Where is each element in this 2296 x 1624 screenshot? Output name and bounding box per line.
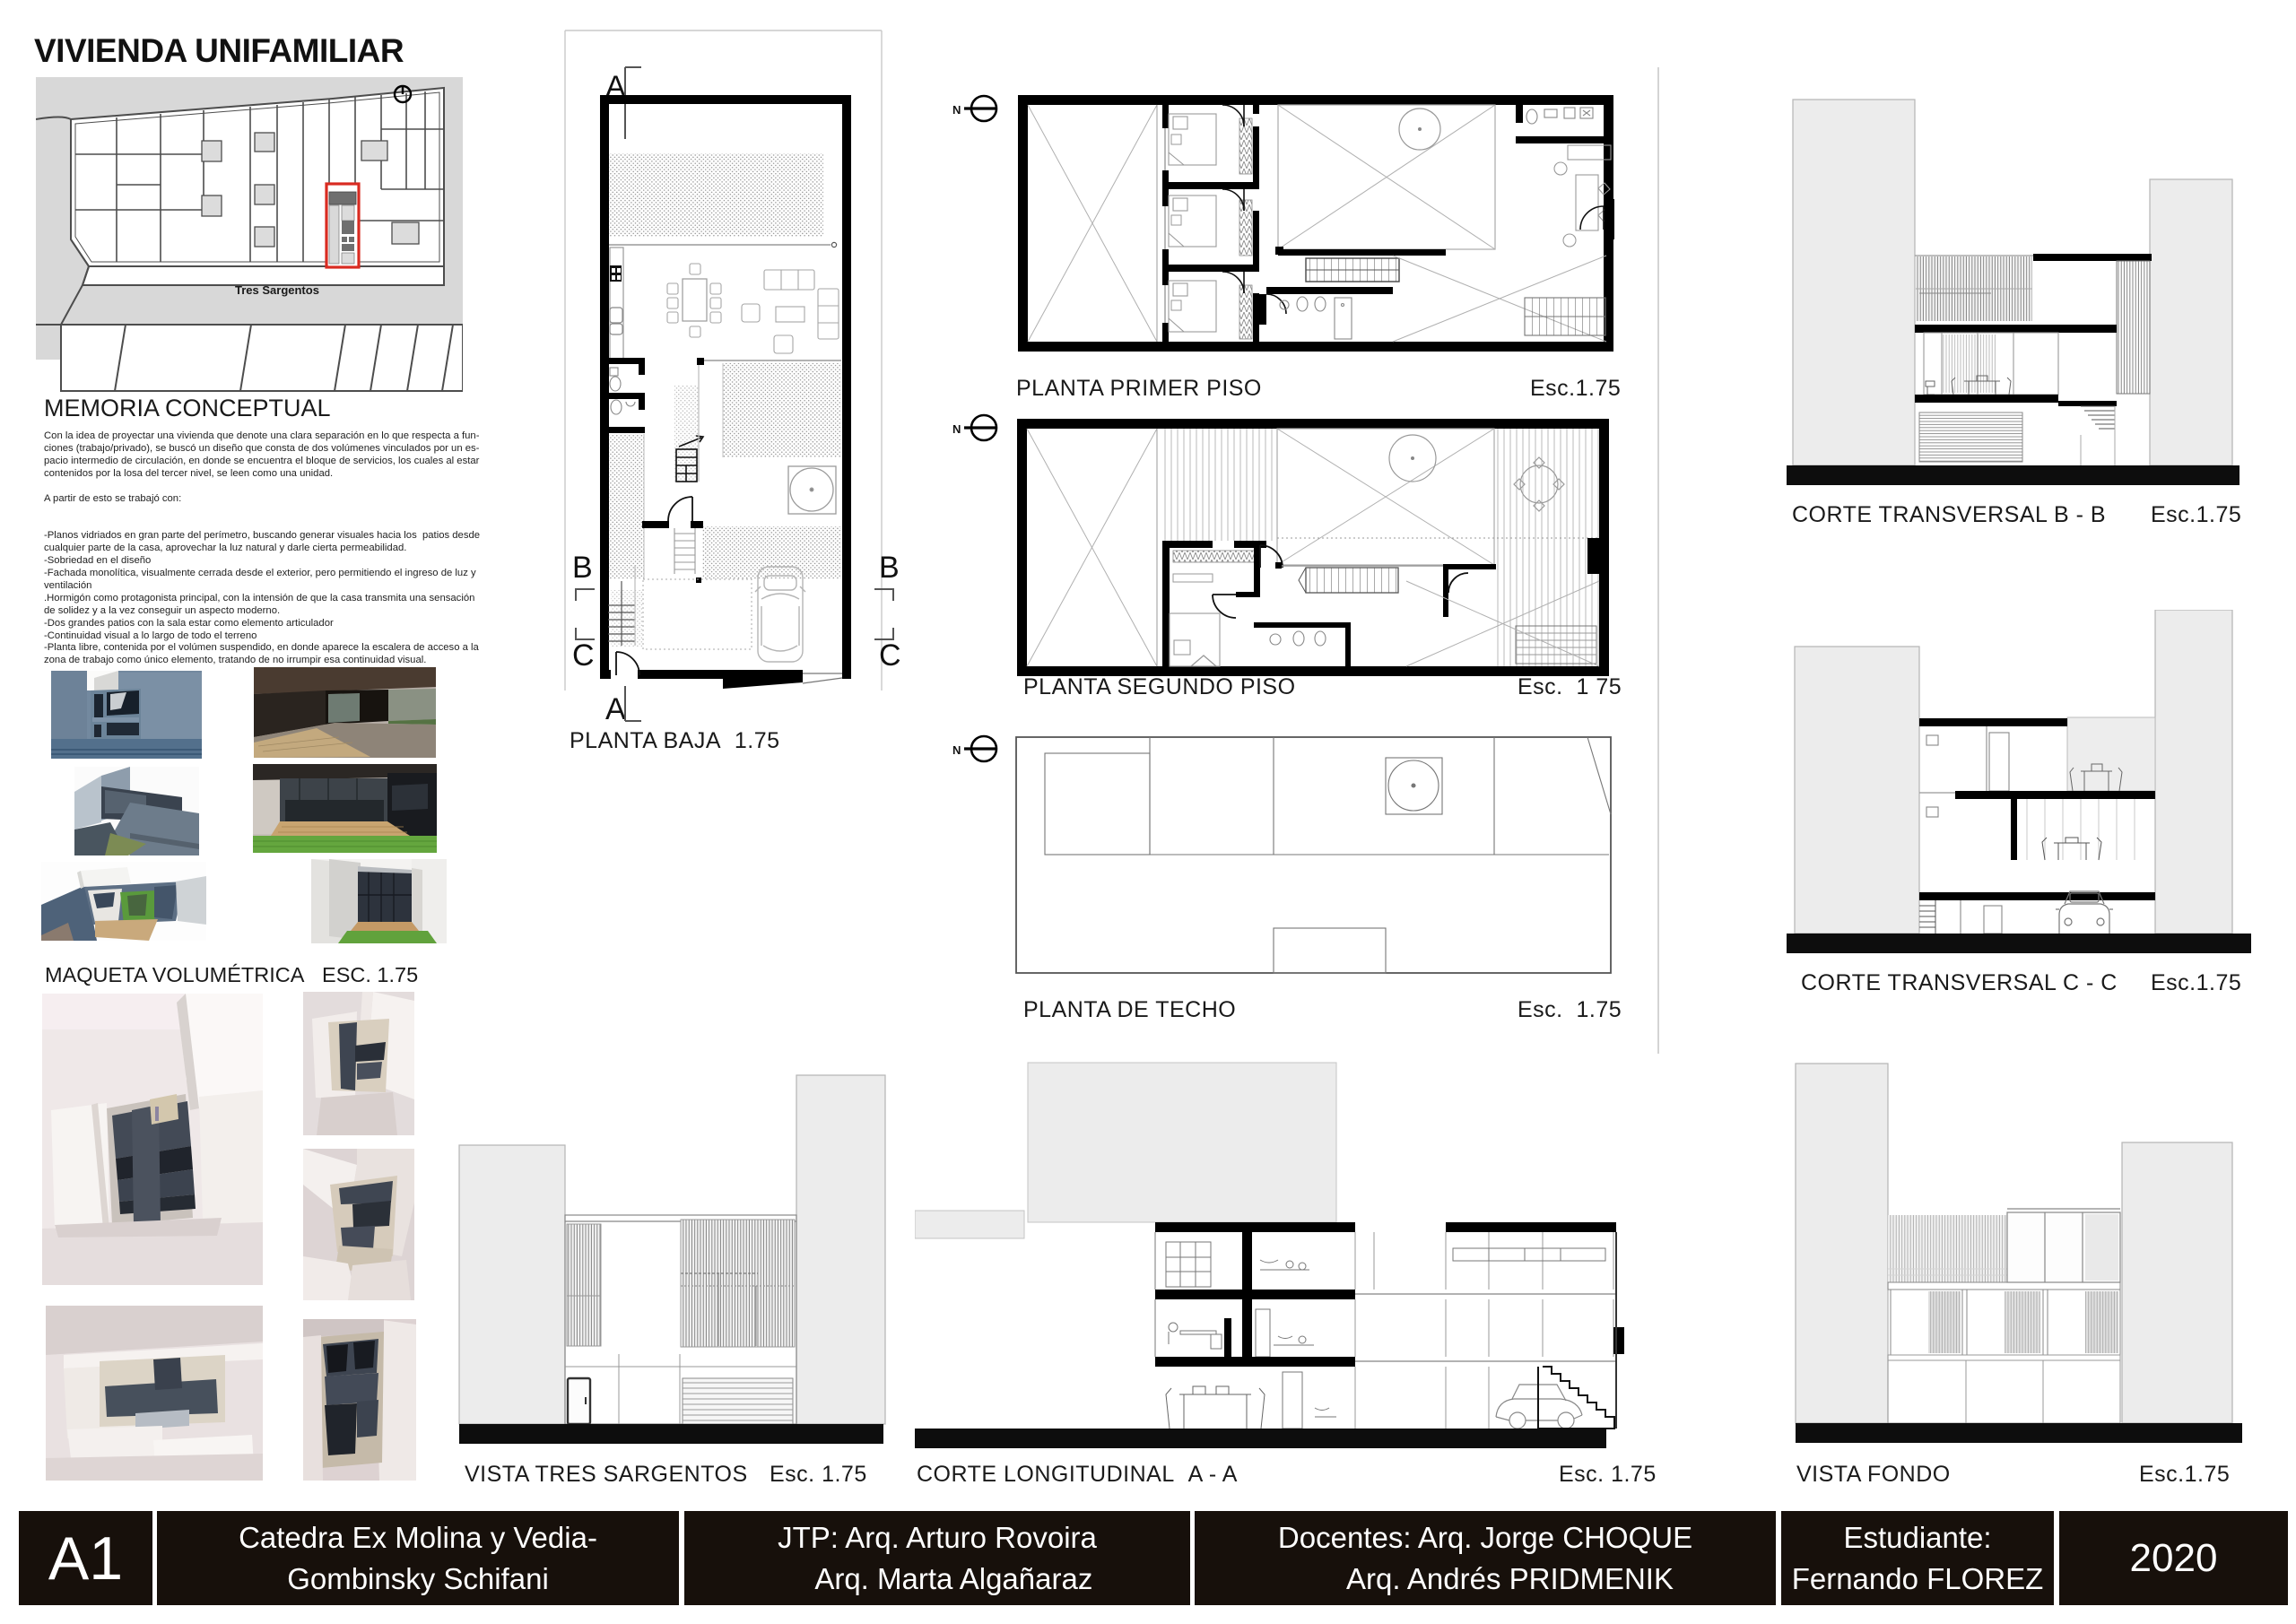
svg-text:C: C <box>879 638 901 673</box>
svg-text:C: C <box>572 638 595 673</box>
svg-text:N: N <box>952 422 961 436</box>
svg-text:A: A <box>605 692 626 726</box>
svg-text:B: B <box>572 551 593 585</box>
svg-text:N: N <box>952 103 961 117</box>
svg-text:N: N <box>952 743 961 757</box>
svg-text:B: B <box>879 551 900 585</box>
svg-text:Tres Sargentos: Tres Sargentos <box>235 283 319 297</box>
